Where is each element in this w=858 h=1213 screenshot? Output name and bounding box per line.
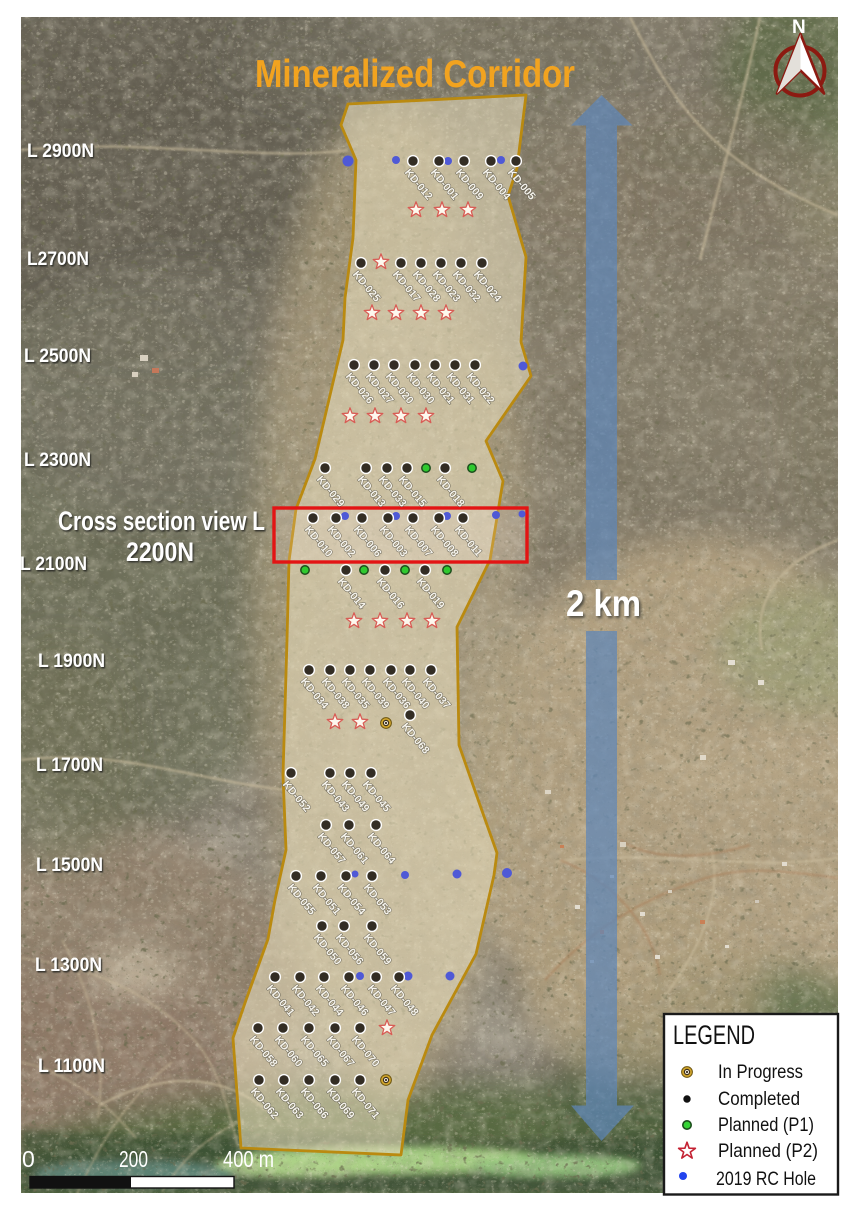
svg-text:L 1900N: L 1900N — [38, 651, 105, 672]
svg-text:L 2100N: L 2100N — [20, 554, 87, 575]
svg-text:Planned (P1): Planned (P1) — [718, 1115, 814, 1136]
svg-text:L 2500N: L 2500N — [24, 346, 91, 367]
svg-text:0: 0 — [22, 1146, 35, 1172]
svg-text:2019 RC Hole: 2019 RC Hole — [716, 1169, 816, 1190]
svg-text:In Progress: In Progress — [718, 1062, 803, 1083]
svg-text:L2700N: L2700N — [27, 249, 89, 270]
svg-text:LEGEND: LEGEND — [673, 1020, 755, 1050]
svg-text:Cross section view L: Cross section view L — [58, 506, 265, 536]
svg-text:2 km: 2 km — [566, 583, 641, 624]
svg-text:L 1300N: L 1300N — [35, 955, 102, 976]
svg-text:Completed: Completed — [718, 1089, 800, 1110]
svg-text:L 2300N: L 2300N — [24, 450, 91, 471]
svg-text:Mineralized Corridor: Mineralized Corridor — [255, 53, 575, 96]
svg-text:L 1500N: L 1500N — [36, 855, 103, 876]
svg-text:400 m: 400 m — [223, 1146, 274, 1172]
svg-text:2200N: 2200N — [126, 537, 194, 567]
svg-text:L 1100N: L 1100N — [38, 1056, 105, 1077]
svg-text:Planned (P2): Planned (P2) — [718, 1141, 818, 1162]
svg-text:200: 200 — [119, 1146, 148, 1172]
svg-text:L 2900N: L 2900N — [27, 141, 94, 162]
svg-text:L 1700N: L 1700N — [36, 755, 103, 776]
